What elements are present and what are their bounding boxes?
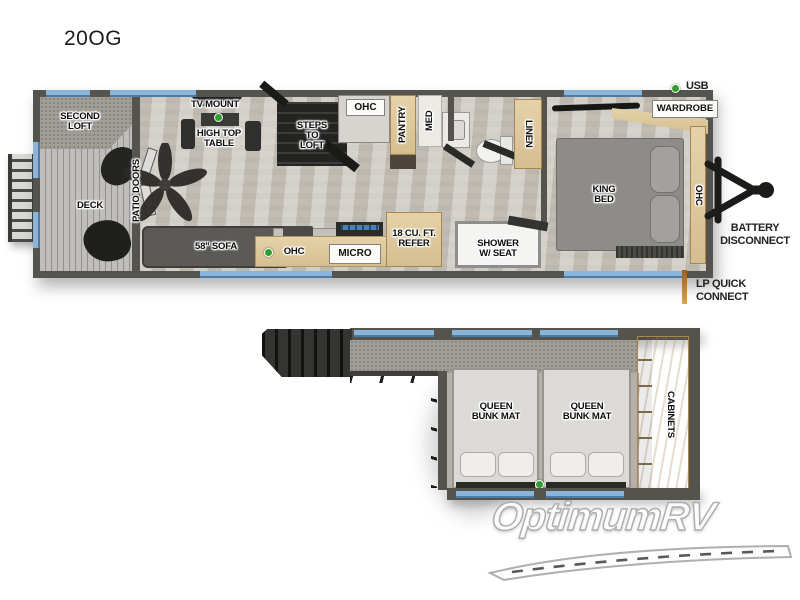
pillow (588, 452, 624, 477)
watermark-logo: OptimumRV (490, 497, 716, 537)
deck-label: DECK (66, 198, 114, 214)
pillow (460, 452, 496, 477)
patio-doors-label: PATIO DOORS (129, 152, 145, 230)
window (540, 330, 618, 337)
usb-label: USB (686, 80, 708, 93)
tv-mount-led-dot (214, 113, 223, 122)
king-bed-label: KING BED (566, 180, 642, 210)
floorplan-title: 20OG (64, 28, 122, 49)
loft-stairs (262, 329, 352, 377)
loft-left-wall (438, 371, 447, 490)
window (452, 330, 532, 337)
loft-railing (350, 376, 440, 383)
refrigerator-label: 18 CU. FT. REFER (386, 222, 442, 256)
pillow (650, 195, 680, 243)
pillow (498, 452, 534, 477)
bath-partition-wall (448, 97, 454, 141)
ohc-kitchen-led-dot (264, 248, 273, 257)
hitch-icon (704, 146, 776, 230)
battery-disconnect-label: BATTERY DISCONNECT (712, 222, 798, 248)
loft-cabinet-doors (638, 337, 652, 491)
linen-label: LINEN (514, 100, 542, 168)
window (46, 90, 90, 97)
high-top-table-label: HIGH TOP TABLE (190, 127, 248, 151)
pillow (650, 146, 680, 193)
window (33, 212, 40, 248)
bed-step (616, 246, 684, 258)
microwave-label: MICRO (329, 244, 381, 264)
ohc-overhead-label: OHC (346, 99, 385, 116)
window (200, 271, 332, 278)
loft-railing (431, 376, 437, 488)
window (354, 330, 434, 337)
bunk-right-label: QUEEN BUNK MAT (547, 398, 627, 426)
pillow (550, 452, 586, 477)
pantry-label: PANTRY (390, 97, 416, 153)
lp-quick-connect-label: LP QUICK CONNECT (696, 278, 748, 304)
window (33, 142, 40, 178)
loft-right-wall (689, 329, 700, 497)
ohc-kitchen-label: OHC (276, 245, 312, 260)
shower-label: SHOWER W/ SEAT (458, 235, 538, 263)
med-cabinet-label: MED (418, 96, 442, 146)
exterior-deck-steps (8, 154, 36, 242)
bunk-left-label: QUEEN BUNK MAT (456, 398, 536, 426)
steps-to-loft-label: STEPS TO LOFT (279, 114, 345, 158)
lp-pipe (682, 270, 687, 304)
logo-road-icon (486, 537, 798, 581)
stove-burners (341, 225, 379, 230)
usb-led-dot (671, 84, 680, 93)
second-loft-label: SECOND LOFT (44, 108, 116, 136)
tv-mount-label: TV MOUNT (184, 99, 246, 111)
window (110, 90, 196, 97)
wardrobe-label: WARDROBE (652, 100, 718, 118)
sofa-label: 58" SOFA (168, 236, 264, 258)
cabinets-label: CABINETS (656, 352, 684, 476)
floorplan-page: 20OG OHC PANTRY ME (0, 0, 800, 600)
window (564, 271, 684, 278)
pantry-base (390, 155, 416, 169)
window (564, 90, 642, 97)
